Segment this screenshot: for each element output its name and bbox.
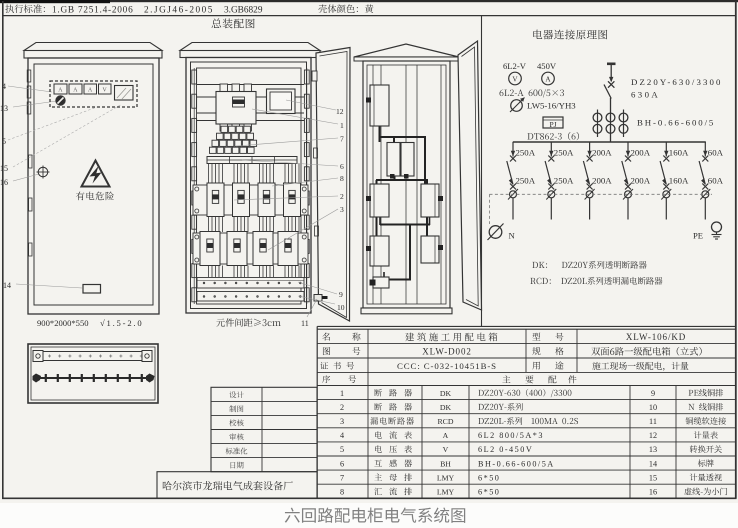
svg-text:6: 6 [340, 459, 344, 468]
svg-text:9: 9 [651, 389, 655, 398]
svg-text:RCD: RCD [437, 417, 453, 426]
svg-text:PE: PE [693, 231, 703, 241]
svg-text:200A: 200A [592, 176, 612, 186]
svg-text:15: 15 [0, 164, 8, 173]
svg-text:10: 10 [337, 303, 345, 312]
svg-text:4: 4 [340, 431, 344, 440]
svg-text:250A: 250A [554, 148, 574, 158]
svg-text:BH: BH [440, 459, 451, 468]
svg-text:6L2-V: 6L2-V [503, 61, 527, 71]
svg-text:6L2 0-450V: 6L2 0-450V [478, 445, 533, 454]
svg-text:A: A [545, 76, 551, 84]
svg-text:N: N [509, 231, 516, 241]
svg-text:250A: 250A [554, 176, 574, 186]
svg-text:DK: DK [440, 389, 452, 398]
svg-text:11: 11 [301, 319, 309, 328]
svg-text:12: 12 [649, 431, 657, 440]
svg-text:CCC: C-032-10451B-S: CCC: C-032-10451B-S [397, 361, 497, 371]
svg-text:16: 16 [649, 488, 657, 497]
svg-text:6*50: 6*50 [478, 488, 500, 497]
svg-text:V: V [443, 445, 449, 454]
svg-text:3: 3 [340, 205, 344, 214]
svg-text:200A: 200A [592, 148, 612, 158]
svg-text:160A: 160A [669, 148, 689, 158]
svg-text:13: 13 [649, 445, 657, 454]
svg-text:6L2 800/5A*3: 6L2 800/5A*3 [478, 431, 544, 440]
svg-text:14: 14 [3, 281, 11, 290]
svg-text:4: 4 [2, 82, 6, 91]
svg-text:LW5-16/YH3: LW5-16/YH3 [527, 101, 576, 111]
svg-text:10: 10 [649, 403, 657, 412]
svg-text:6*50: 6*50 [478, 473, 500, 482]
svg-text:5: 5 [340, 445, 344, 454]
svg-text:BH-0.66-600/5A: BH-0.66-600/5A [478, 459, 555, 468]
svg-text:60A: 60A [708, 148, 724, 158]
svg-text:2: 2 [340, 403, 344, 412]
svg-text:1: 1 [340, 389, 344, 398]
svg-text:450V: 450V [537, 61, 557, 71]
svg-text:LMY: LMY [437, 473, 455, 482]
svg-text:BH-0.66-600/5: BH-0.66-600/5 [637, 118, 715, 128]
svg-text:XLW-D002: XLW-D002 [422, 346, 472, 356]
svg-text:√1.5-2.0: √1.5-2.0 [100, 318, 143, 328]
svg-text:13: 13 [0, 104, 8, 113]
svg-text:8: 8 [340, 174, 344, 183]
svg-text:6: 6 [340, 162, 344, 171]
svg-text:16: 16 [0, 178, 8, 187]
svg-text:7: 7 [340, 473, 344, 482]
svg-text:PJ: PJ [549, 120, 556, 129]
svg-text:2.JGJ46-2005: 2.JGJ46-2005 [144, 5, 214, 15]
svg-text:5: 5 [2, 137, 6, 146]
svg-text:7: 7 [340, 135, 344, 144]
svg-text:250A: 250A [516, 148, 536, 158]
svg-text:2: 2 [340, 192, 344, 201]
svg-text:630A: 630A [631, 90, 660, 100]
svg-text:A: A [443, 431, 449, 440]
svg-text:8: 8 [340, 488, 344, 497]
svg-text:11: 11 [649, 417, 657, 426]
svg-text:3.GB6829: 3.GB6829 [224, 5, 263, 15]
svg-text:DZ20Y-630/3300: DZ20Y-630/3300 [631, 77, 722, 87]
svg-text:200A: 200A [631, 176, 651, 186]
svg-text:60A: 60A [708, 176, 724, 186]
svg-text:12: 12 [336, 107, 344, 116]
svg-text:14: 14 [649, 459, 657, 468]
svg-text:V: V [512, 76, 518, 84]
svg-text:15: 15 [649, 473, 657, 482]
svg-text:160A: 160A [669, 176, 689, 186]
svg-text:DK: DK [440, 403, 452, 412]
svg-text:900*2000*550: 900*2000*550 [37, 318, 89, 328]
svg-text:200A: 200A [631, 148, 651, 158]
svg-text:XLW-106/KD: XLW-106/KD [626, 332, 686, 342]
svg-text:9: 9 [339, 290, 343, 299]
svg-text:LMY: LMY [437, 488, 455, 497]
svg-text:3: 3 [340, 417, 344, 426]
svg-text:1.GB 7251.4-2006: 1.GB 7251.4-2006 [52, 5, 133, 15]
svg-text:1: 1 [340, 121, 344, 130]
svg-text:250A: 250A [516, 176, 536, 186]
